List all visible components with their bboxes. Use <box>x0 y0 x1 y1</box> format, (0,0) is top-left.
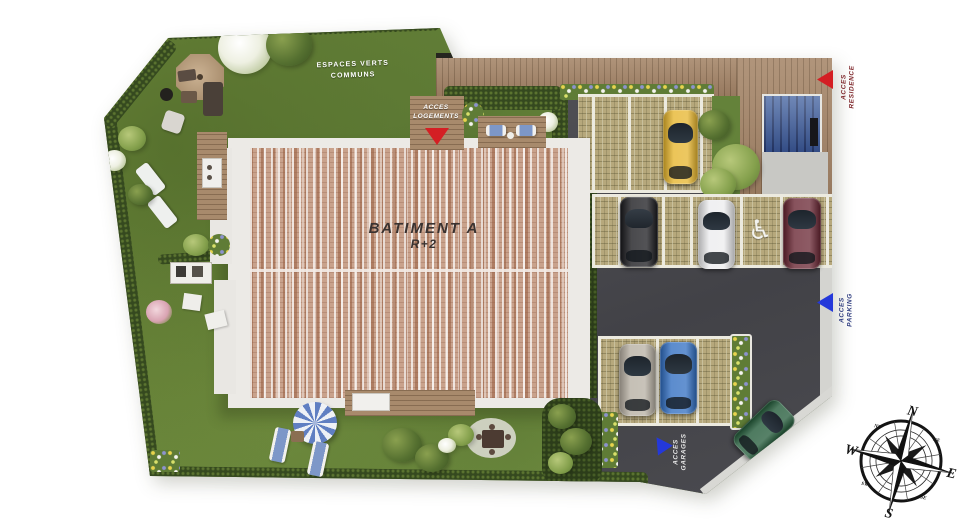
outdoor-sofa <box>203 82 223 116</box>
parking-line <box>598 423 750 426</box>
flowerbed-row3 <box>730 334 752 430</box>
parking-line <box>662 194 665 268</box>
building-roof <box>250 148 568 398</box>
bush <box>183 234 209 256</box>
compass-rose: N S W E NW NE SW SE <box>845 398 957 522</box>
tree <box>266 24 312 66</box>
table-west <box>202 158 222 188</box>
access-logements-label: ACCES LOGEMENTS <box>406 103 466 122</box>
building-level: R+2 <box>304 237 544 251</box>
car-silver <box>619 344 656 416</box>
car-blue <box>660 342 697 414</box>
side-table <box>291 431 304 442</box>
parking-line <box>628 96 631 192</box>
bush <box>548 404 576 429</box>
parking-line <box>598 336 750 339</box>
coffee-table <box>181 91 197 103</box>
concrete-pad <box>762 152 828 196</box>
chair <box>207 175 212 180</box>
parking-line <box>578 190 714 193</box>
lounger <box>486 125 506 136</box>
chair <box>489 424 495 430</box>
bush <box>548 452 573 474</box>
access-parking-line1: ACCES <box>839 297 847 323</box>
building-label: BATIMENT A R+2 <box>304 220 544 251</box>
roof-ridge <box>250 269 568 272</box>
car-white <box>698 200 735 269</box>
handicap-parking-symbol: ♿ <box>748 215 772 246</box>
parking-line <box>690 194 693 268</box>
bush <box>560 428 592 455</box>
compass-e: E <box>944 466 957 483</box>
white-flower-cluster <box>438 438 456 453</box>
garden-table <box>482 430 504 448</box>
access-residence-line2: RESIDENCE <box>849 65 857 108</box>
table-south <box>352 393 390 411</box>
parking-line <box>592 96 595 192</box>
flowerbed-bottom-left <box>150 450 180 472</box>
bush <box>103 150 126 171</box>
grill <box>160 88 173 101</box>
car-dark-red <box>783 198 821 269</box>
green-spaces-label: ESPACES VERTS COMMUNS <box>300 58 407 83</box>
planter-box <box>192 266 203 277</box>
parking-line <box>578 94 714 97</box>
access-garages-line1: ACCES <box>673 439 681 465</box>
chair <box>505 434 511 440</box>
building-name: BATIMENT A <box>304 220 544 237</box>
site-area: ♿ BATIMENT A R+2 ACCES LO <box>0 0 959 525</box>
access-garages-label: ACCES GARAGES <box>673 433 690 470</box>
compass-ne: NE <box>931 438 941 445</box>
bush <box>698 110 730 140</box>
car-black <box>620 197 658 267</box>
site-plan-render: ♿ BATIMENT A R+2 ACCES LO <box>0 0 959 525</box>
parasol-pole <box>197 74 203 80</box>
access-logements-line2: LOGEMENTS <box>406 112 466 121</box>
lounger <box>516 125 536 136</box>
access-garages-line2: GARAGES <box>681 433 689 470</box>
flower-bush <box>208 234 230 256</box>
bush <box>128 184 153 205</box>
access-parking-label: ACCES PARKING <box>839 293 856 327</box>
bush <box>118 126 146 151</box>
shelter-door <box>810 118 818 146</box>
planter-box <box>176 266 186 277</box>
parking-line <box>592 194 595 268</box>
fence-top <box>436 53 832 58</box>
access-residence-line1: ACCES <box>841 74 849 100</box>
pink-flower-bush <box>146 300 172 324</box>
chair <box>207 165 212 170</box>
building-wing-west-2 <box>214 280 236 394</box>
parking-line <box>740 194 743 268</box>
blossom-tree <box>218 22 272 74</box>
access-logements-line1: ACCES <box>406 103 466 112</box>
compass-s: S <box>883 506 894 522</box>
chair <box>476 434 482 440</box>
access-parking-line2: PARKING <box>847 293 855 327</box>
compass-n: N <box>905 403 920 420</box>
compass-sw: SW <box>861 482 870 489</box>
garden-box <box>182 293 202 311</box>
round-table <box>507 132 514 139</box>
chair <box>489 449 495 455</box>
access-residence-label: ACCES RESIDENCE <box>841 65 858 108</box>
parking-line <box>656 336 659 426</box>
compass-se: SE <box>920 495 928 501</box>
car-yellow <box>663 110 698 184</box>
parking-line <box>826 194 829 268</box>
